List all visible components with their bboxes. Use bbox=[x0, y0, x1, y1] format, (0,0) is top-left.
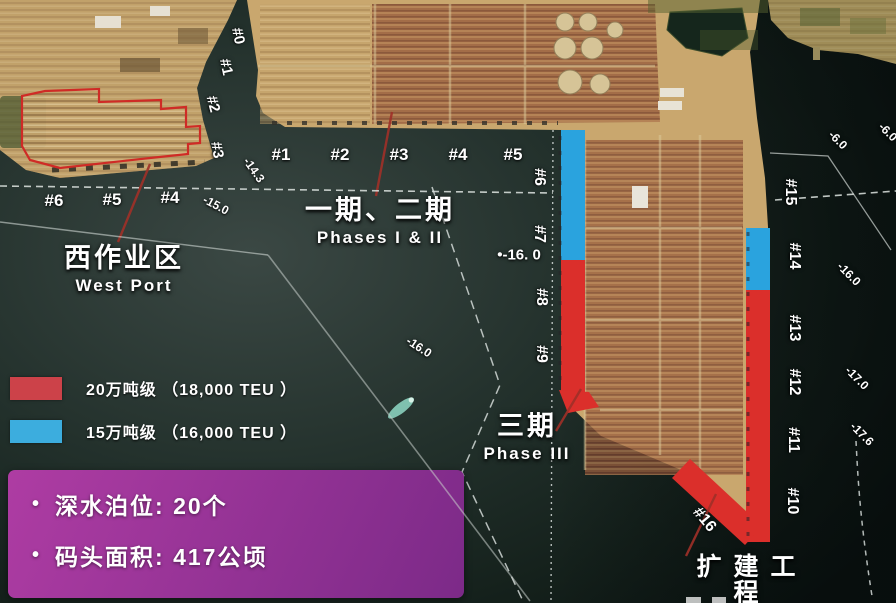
greenery bbox=[700, 30, 758, 50]
stats-infobox: •深水泊位: 20个 •码头面积: 417公顷 bbox=[8, 470, 464, 598]
berth-strip-20w-east bbox=[746, 290, 770, 542]
berth-strip-15w-east bbox=[746, 228, 770, 290]
clipped-text-hint bbox=[712, 597, 726, 603]
legend-label-20w: 20万吨级 （18,000 TEU ） bbox=[86, 376, 297, 400]
stat-berths: •深水泊位: 20个 bbox=[8, 487, 464, 521]
bullet-icon: • bbox=[32, 493, 41, 516]
port-plan-slide: #0#1#2#3#1#2#3#4#5#6#5#4#6#7#8#9#15#14#1… bbox=[0, 0, 896, 603]
stat-area-text: 码头面积: 417公顷 bbox=[55, 538, 267, 572]
legend-row-15w: 15万吨级 （16,000 TEU ） bbox=[10, 419, 297, 443]
berth-strip-15w-west bbox=[561, 130, 585, 260]
greenery bbox=[648, 0, 768, 13]
legend: 20万吨级 （18,000 TEU ） 15万吨级 （16,000 TEU ） bbox=[10, 376, 297, 462]
stat-area: •码头面积: 417公顷 bbox=[8, 538, 464, 572]
bullet-icon: • bbox=[32, 544, 41, 567]
berth-strip-20w-west bbox=[561, 260, 585, 392]
legend-swatch-20w bbox=[10, 377, 62, 400]
clipped-text-hint bbox=[686, 597, 701, 603]
legend-row-20w: 20万吨级 （18,000 TEU ） bbox=[10, 376, 297, 400]
legend-swatch-15w bbox=[10, 420, 62, 443]
legend-label-15w: 15万吨级 （16,000 TEU ） bbox=[86, 419, 297, 443]
stat-berths-text: 深水泊位: 20个 bbox=[55, 487, 228, 521]
